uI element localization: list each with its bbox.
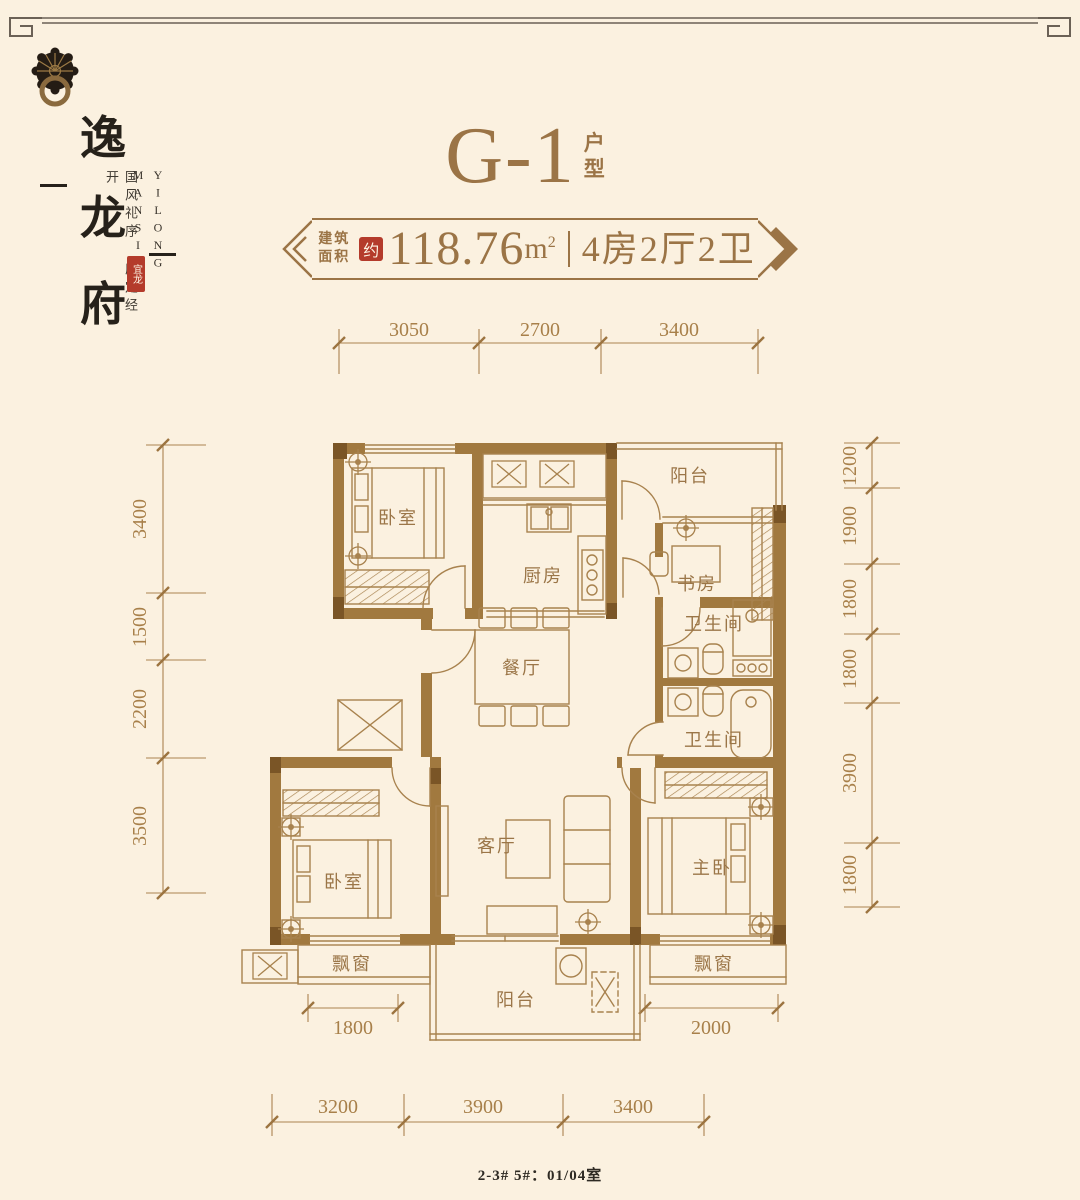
dim-label: 2700 xyxy=(520,319,560,341)
floorplan-page: 逸 龙 府 国风礼序 府定经开 YILONG MANSION 宜龙 G-1 户 … xyxy=(0,0,1080,1200)
unit-m: m xyxy=(524,232,547,265)
banner-prefix: 建筑 面积 xyxy=(318,231,350,267)
banner-left-chevron xyxy=(272,220,312,278)
dim-label: 2000 xyxy=(691,1017,731,1039)
unit-location-note: 2-3# 5#：01/04室 xyxy=(0,1164,1080,1185)
room-label-study: 书房 xyxy=(677,574,717,594)
master-furniture xyxy=(648,772,774,938)
banner-body: 建筑 面积 约 118.76 m2 4房2厅2卫 xyxy=(312,218,758,280)
dim-label: 1800 xyxy=(839,579,861,619)
entry-door xyxy=(432,630,475,673)
dim-top: 3050 2700 3400 xyxy=(333,319,764,374)
room-label-balcony-bottom: 阳台 xyxy=(496,990,536,1010)
room-label-master: 主卧 xyxy=(692,858,732,878)
room-label-bath-top: 卫生间 xyxy=(684,614,744,634)
room-label-bath-bottom: 卫生间 xyxy=(684,730,744,750)
room-label-kitchen: 厨房 xyxy=(523,566,563,586)
dim-label: 3900 xyxy=(839,753,861,793)
dim-right: 1200 1900 1800 1800 3900 1800 xyxy=(839,437,900,913)
banner-divider xyxy=(568,231,570,267)
room-label-balcony-top: 阳台 xyxy=(670,466,710,486)
dim-inner-bays: 1800 2000 xyxy=(302,994,784,1039)
dim-label: 1900 xyxy=(839,506,861,546)
dim-label: 3900 xyxy=(463,1096,503,1118)
suffix-char: 型 xyxy=(584,156,605,182)
floor-plan: 3050 2700 3400 3200 3900 3400 xyxy=(0,300,1080,1160)
dim-label: 1800 xyxy=(839,855,861,895)
layout-spec: 4房2厅2卫 xyxy=(582,231,756,267)
unit-title: G-1 户 型 xyxy=(0,116,1080,196)
unit-code: G-1 xyxy=(445,116,575,196)
room-label-bedroom-bottom: 卧室 xyxy=(324,872,364,892)
room-label-bay-right: 飘窗 xyxy=(694,954,734,974)
greek-key-corner-right xyxy=(1038,18,1070,36)
dim-label: 3050 xyxy=(389,319,429,341)
living-furniture xyxy=(436,796,610,935)
bedroom-bottom-door xyxy=(392,768,430,806)
dim-label: 1800 xyxy=(839,649,861,689)
room-label-dining: 餐厅 xyxy=(502,658,542,678)
dim-label: 1200 xyxy=(839,446,861,486)
dim-label: 3400 xyxy=(129,499,151,539)
room-label-living: 客厅 xyxy=(477,836,517,856)
approx-seal: 约 xyxy=(359,237,383,261)
prefix-line: 建筑 xyxy=(318,231,350,249)
dim-label: 3200 xyxy=(318,1096,358,1118)
balcony-top-door xyxy=(622,481,660,519)
bath-bottom-door xyxy=(628,722,663,755)
banner-right-chevron xyxy=(758,220,802,278)
dim-left: 3400 1500 2200 3500 xyxy=(129,439,206,899)
exterior-shaft xyxy=(338,700,402,750)
room-label-bedroom-top: 卧室 xyxy=(378,508,418,528)
room-label-bay-left: 飘窗 xyxy=(332,954,372,974)
unit-exp: 2 xyxy=(548,234,556,251)
door-knocker-icon xyxy=(26,46,84,112)
prefix-line: 面积 xyxy=(318,249,350,267)
area-unit: m2 xyxy=(524,234,555,264)
dim-label: 3400 xyxy=(613,1096,653,1118)
dim-label: 3500 xyxy=(129,806,151,846)
unit-type-suffix: 户 型 xyxy=(584,116,605,183)
area-value: 118.76 xyxy=(388,225,524,273)
area-banner: 建筑 面积 约 118.76 m2 4房2厅2卫 xyxy=(0,218,1080,280)
dim-label: 1800 xyxy=(333,1017,373,1039)
suffix-char: 户 xyxy=(584,130,605,156)
dim-label: 1500 xyxy=(129,607,151,647)
kitchen-fixtures xyxy=(527,504,606,614)
study-door xyxy=(623,558,659,597)
dim-bottom: 3200 3900 3400 xyxy=(266,1094,710,1136)
dim-label: 2200 xyxy=(129,689,151,729)
dim-label: 3400 xyxy=(659,319,699,341)
bedroom-bottom-furniture xyxy=(278,790,391,942)
